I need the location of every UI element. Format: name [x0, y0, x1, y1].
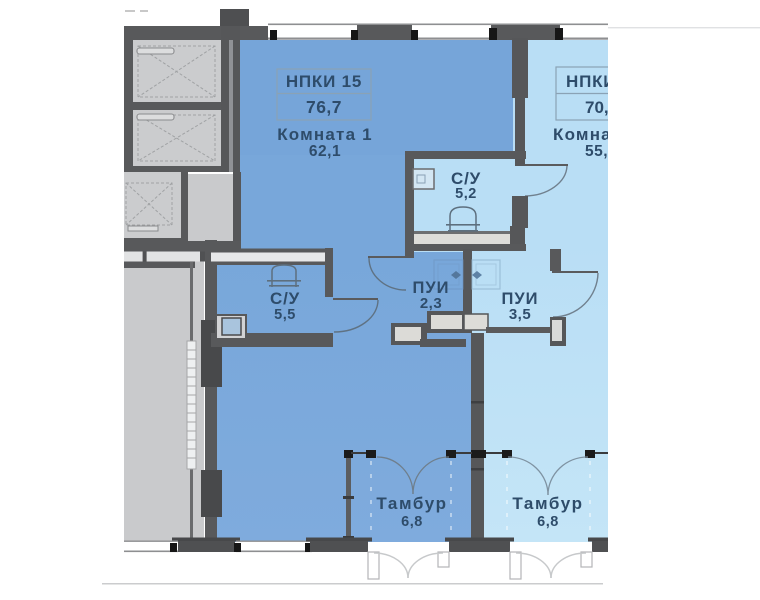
svg-text:6,8: 6,8: [537, 514, 559, 530]
svg-text:6,8: 6,8: [401, 514, 423, 530]
svg-text:5,2: 5,2: [455, 186, 477, 202]
svg-text:Тамбур: Тамбур: [376, 494, 447, 513]
svg-text:С/У: С/У: [270, 289, 300, 308]
svg-text:5,5: 5,5: [274, 307, 296, 323]
svg-text:62,1: 62,1: [309, 143, 341, 160]
svg-text:2,3: 2,3: [420, 295, 442, 312]
svg-text:76,7: 76,7: [306, 97, 342, 117]
svg-text:Комната 1: Комната 1: [277, 125, 373, 144]
svg-text:3,5: 3,5: [509, 306, 531, 323]
svg-text:Тамбур: Тамбур: [512, 494, 583, 513]
svg-text:НПКИ 15: НПКИ 15: [286, 72, 362, 91]
